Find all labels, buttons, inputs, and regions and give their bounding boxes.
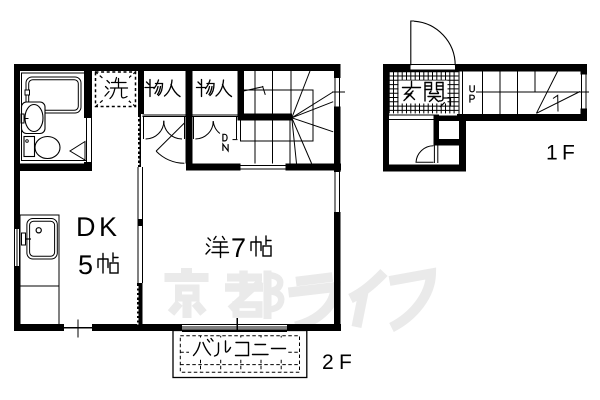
svg-text:2: 2	[322, 351, 334, 374]
svg-text:5: 5	[78, 250, 93, 280]
svg-text:F: F	[562, 142, 575, 165]
svg-text:1: 1	[546, 142, 558, 165]
svg-text:K: K	[99, 212, 117, 242]
svg-text:D: D	[76, 212, 96, 242]
svg-text:F: F	[339, 351, 352, 374]
svg-text:7: 7	[231, 233, 246, 263]
